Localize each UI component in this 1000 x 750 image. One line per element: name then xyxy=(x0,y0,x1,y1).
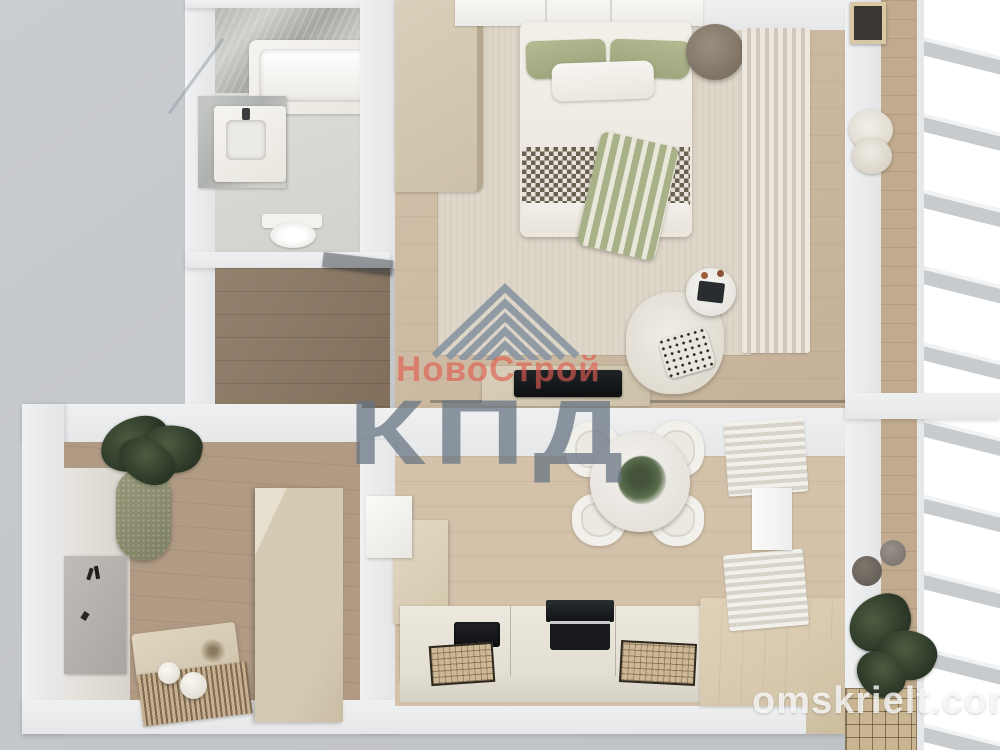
balcony-chair xyxy=(852,138,892,174)
balcony-pot xyxy=(880,540,906,566)
white-pillow xyxy=(551,60,654,102)
copper-cup xyxy=(717,270,724,277)
kitchen-fridge-top xyxy=(366,496,412,558)
vanity-sink-counter xyxy=(214,106,286,182)
tablet-on-table xyxy=(697,280,725,303)
site-credit-watermark: omskrielt.com xyxy=(752,680,1000,723)
bathroom-bedroom-wall xyxy=(360,0,395,268)
bedroom-wardrobe xyxy=(395,0,483,192)
balcony-floor-upper xyxy=(881,0,917,395)
pouf xyxy=(686,24,744,80)
deco-sphere xyxy=(180,672,207,699)
balcony-door-panel xyxy=(752,488,792,550)
sink-bowl xyxy=(226,120,266,160)
entry-wardrobe xyxy=(255,488,343,722)
watermark-brand-letters: КПД xyxy=(348,398,632,468)
oven xyxy=(550,621,610,650)
deco-sphere xyxy=(158,662,180,684)
kitchen-curtain-upper xyxy=(724,417,809,496)
toilet-bowl xyxy=(270,222,316,248)
entry-outer-wall xyxy=(22,404,64,734)
bathtub-basin xyxy=(259,49,375,102)
floor-plan-render: НовоСтрой КПД omskrielt.com xyxy=(0,0,1000,750)
kitchen-curtain-lower xyxy=(723,549,809,632)
bathroom-outer-wall xyxy=(185,0,215,425)
cooktop xyxy=(546,600,614,622)
wicker-tray xyxy=(619,640,697,686)
copper-cup xyxy=(701,272,708,279)
balcony-pot xyxy=(852,556,882,586)
faucet xyxy=(242,108,250,120)
balcony-divider-wall xyxy=(845,393,1000,419)
counter-seam xyxy=(615,606,616,678)
watermark-roof-chevron-icon xyxy=(428,282,583,360)
bedroom-curtains xyxy=(742,28,810,353)
balcony-windows xyxy=(917,0,1000,750)
counter-seam xyxy=(510,606,511,678)
wicker-tray xyxy=(429,642,496,686)
balcony-wall-art xyxy=(850,2,886,44)
